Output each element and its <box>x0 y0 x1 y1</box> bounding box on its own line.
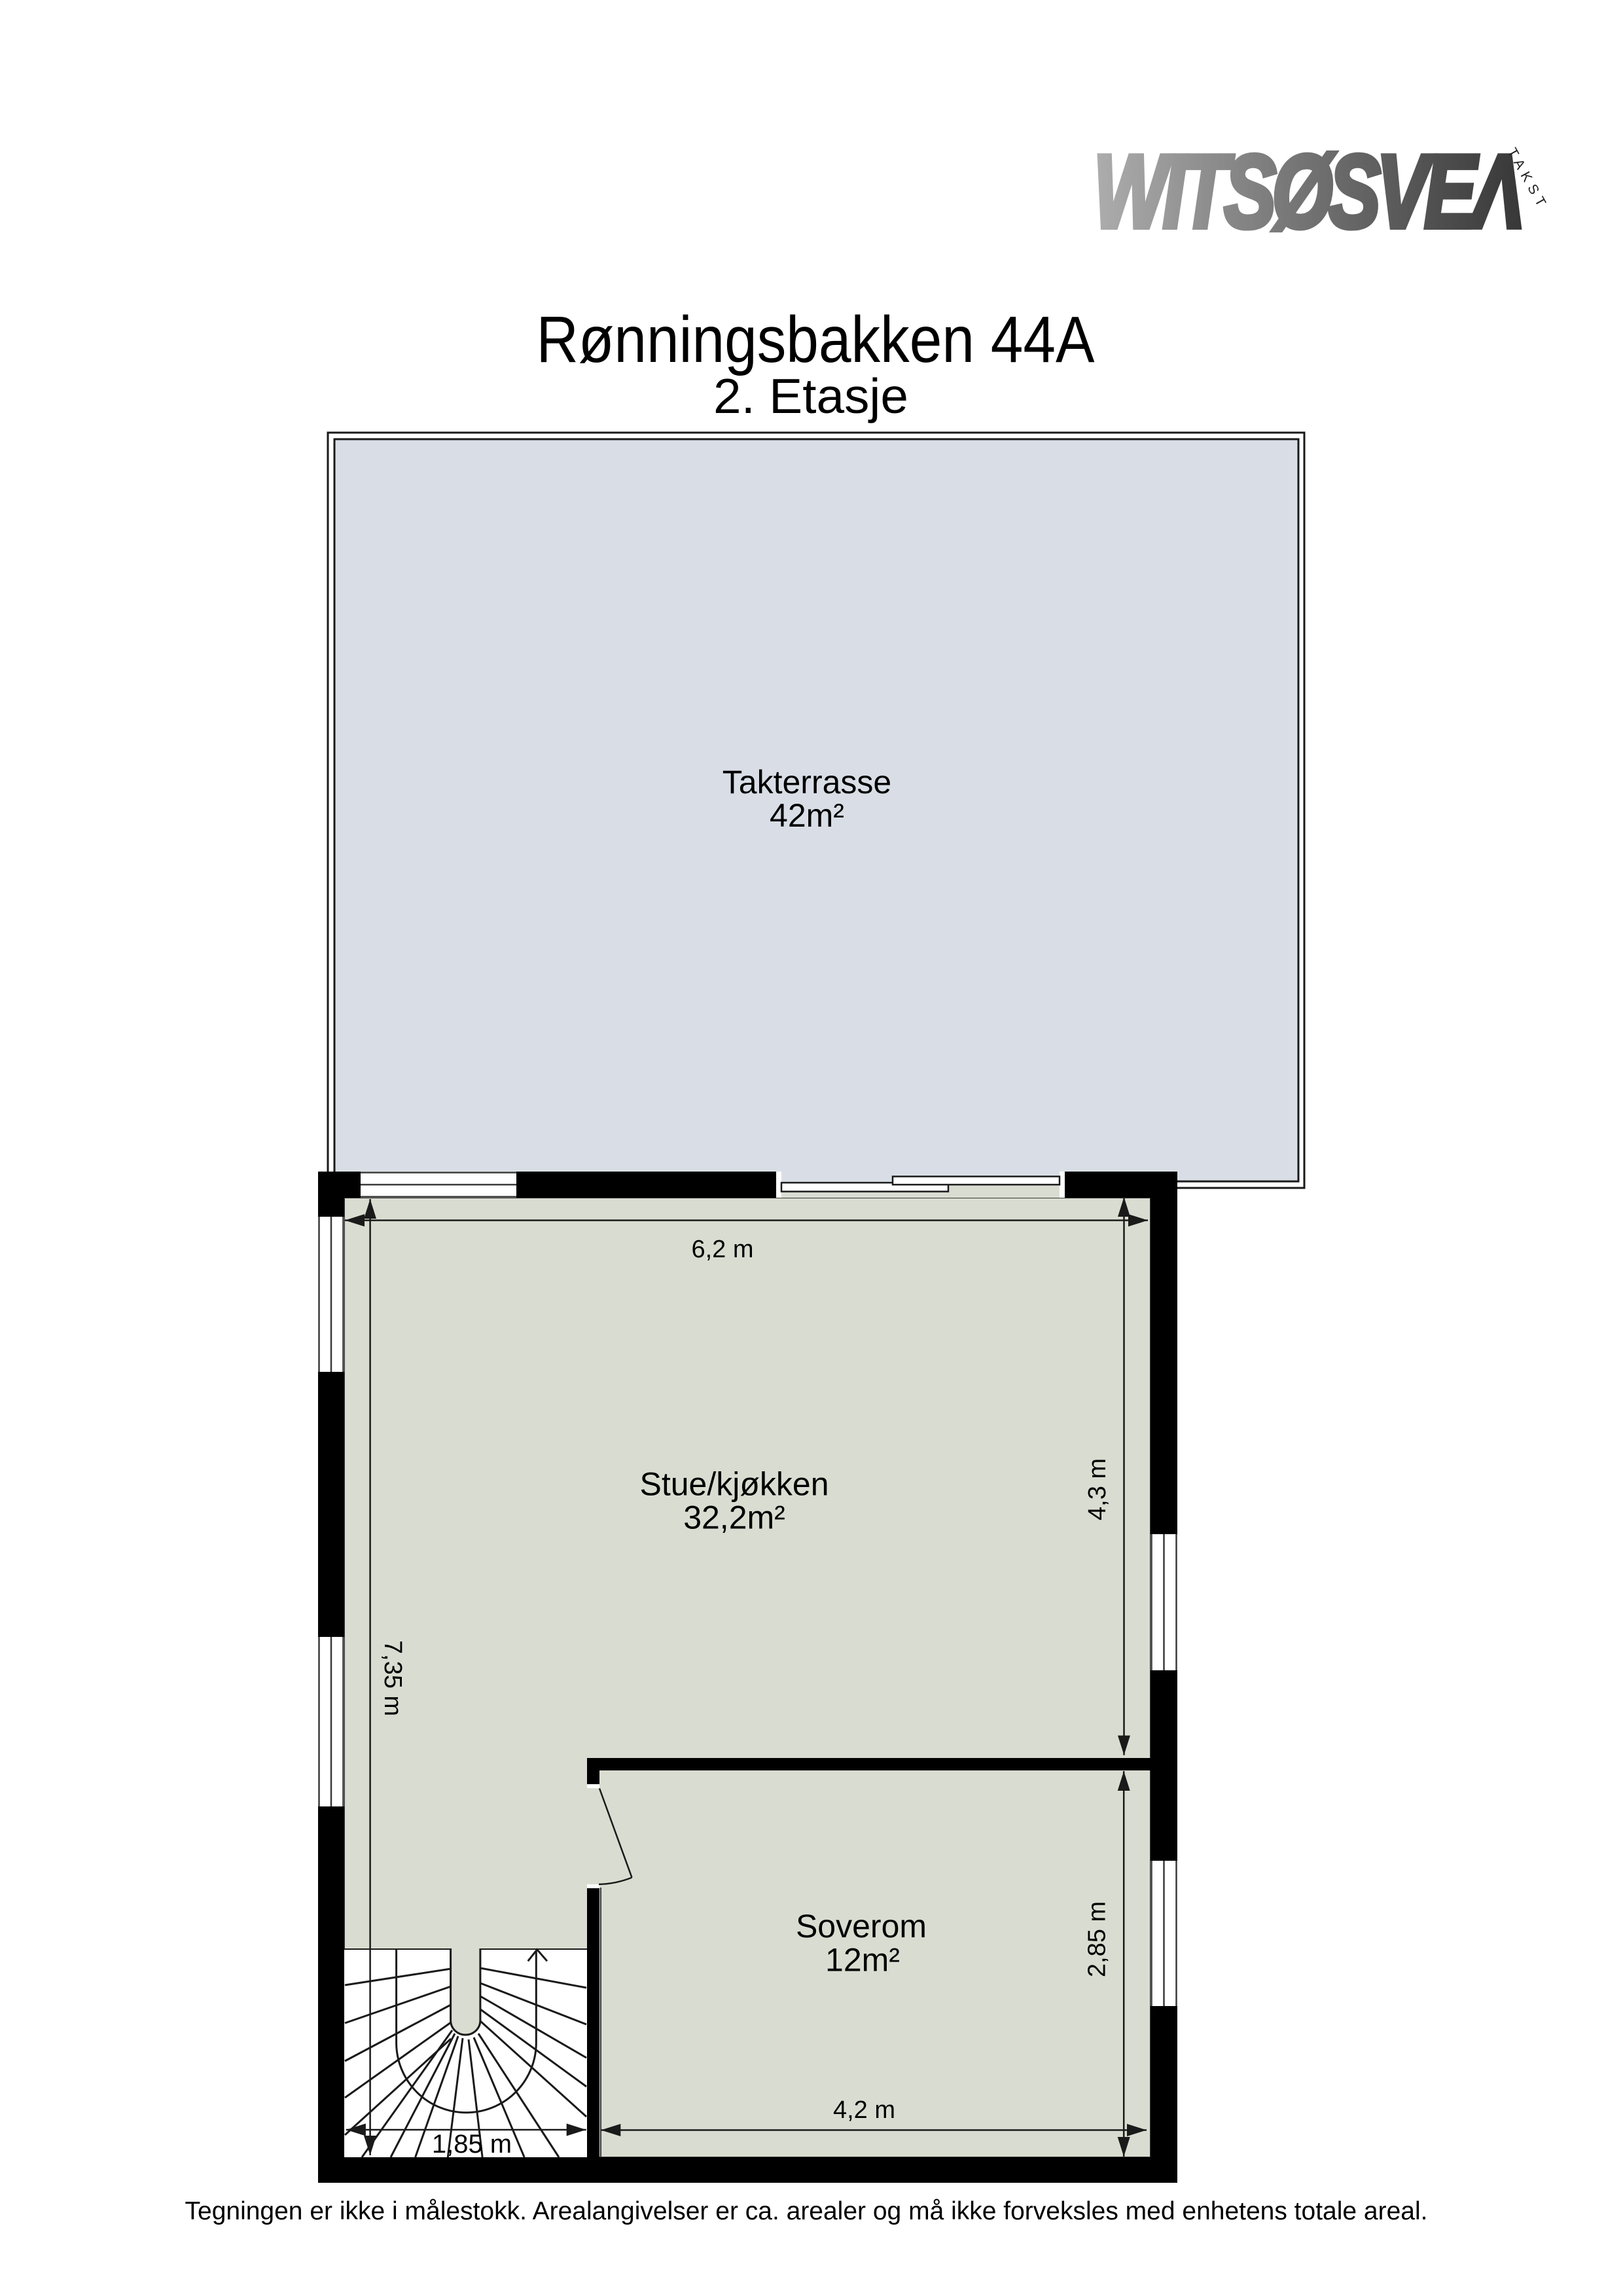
svg-text:32,2m²: 32,2m² <box>683 1499 785 1536</box>
svg-text:WITSØSVEΛ: WITSØSVEΛ <box>1094 134 1520 249</box>
svg-text:42m²: 42m² <box>770 797 844 834</box>
svg-text:7,35 m: 7,35 m <box>379 1640 406 1716</box>
svg-text:2. Etasje: 2. Etasje <box>713 368 908 423</box>
svg-text:4,3 m: 4,3 m <box>1084 1458 1111 1520</box>
svg-text:Tegningen er ikke i målestokk.: Tegningen er ikke i målestokk. Arealangi… <box>185 2197 1428 2225</box>
svg-text:1,85 m: 1,85 m <box>432 2130 512 2159</box>
svg-text:6,2 m: 6,2 m <box>691 1236 753 1263</box>
svg-text:Stue/kjøkken: Stue/kjøkken <box>639 1466 829 1503</box>
svg-text:12m²: 12m² <box>825 1942 900 1979</box>
svg-text:2,85 m: 2,85 m <box>1084 1901 1111 1977</box>
svg-text:Takterrasse: Takterrasse <box>722 764 891 800</box>
svg-text:Soverom: Soverom <box>796 1908 927 1945</box>
svg-text:4,2 m: 4,2 m <box>833 2096 895 2124</box>
svg-text:Rønningsbakken 44A: Rønningsbakken 44A <box>537 303 1095 376</box>
